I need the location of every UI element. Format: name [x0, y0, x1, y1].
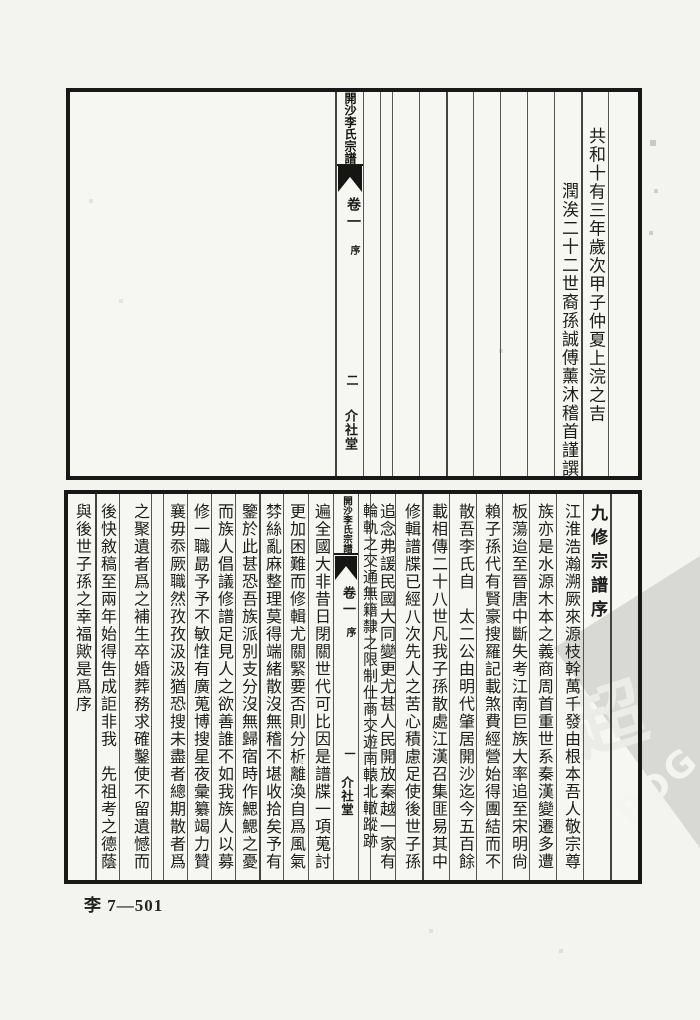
text-column: 散吾李氏自 太二公由明代肇居開沙迄今五百餘	[451, 503, 477, 871]
spine-title: 開沙李氏宗譜	[334, 495, 358, 555]
preface-title-column: 九修宗譜序	[584, 504, 610, 624]
scan-noise	[0, 0, 2, 2]
column-rule	[610, 494, 612, 880]
spine-page-number: 一	[341, 748, 357, 759]
text-column: 族亦是水源木本之義商周首重世系秦漢變遷多遭	[530, 503, 556, 871]
column-rule	[502, 494, 503, 880]
text-column: 遍全國大非昔日閉關世代可比因是譜牒一項蒐討	[307, 503, 333, 871]
column-rule	[363, 92, 364, 476]
spine-volume: 卷一	[342, 197, 362, 231]
column-rule	[95, 494, 97, 880]
spine-section: 序	[342, 627, 357, 637]
column-rule	[422, 494, 424, 880]
column-rule	[358, 494, 359, 880]
column-rule	[419, 92, 420, 476]
text-column: 修輯譜牒已經八次先人之苦心積慮足使後世子孫	[397, 503, 423, 871]
column-rule	[151, 494, 152, 880]
column-rule	[333, 494, 334, 880]
spine-section: 序	[346, 245, 361, 255]
column-rule	[235, 494, 236, 880]
text-column: 輪軌之交通無籍隸之限制仕商交遊南轅北轍蹤跡	[356, 503, 382, 850]
column-rule	[449, 494, 450, 880]
text-column: 鑒於此甚恐吾族派別支分沒無歸宿時作鰓鰓之憂	[234, 503, 260, 871]
column-rule	[283, 494, 284, 880]
column-rule	[163, 494, 164, 880]
column-rule	[119, 494, 120, 880]
column-rule	[556, 494, 557, 880]
spine-title: 開沙李氏宗譜	[337, 92, 363, 166]
spine-hall-name: 介社堂	[337, 776, 356, 817]
column-rule	[608, 92, 609, 476]
text-column: 板蕩迨至晉唐中斷失考江南巨族大率追至宋明尙	[504, 503, 530, 871]
catalogue-code: 李 7—501	[84, 891, 163, 916]
text-column: 賴子孫代有賢豪搜羅記載煞費經營始得團結而不	[477, 503, 503, 871]
spine-hall-name: 介社堂	[341, 409, 360, 451]
column-rule	[392, 92, 393, 476]
column-rule	[473, 92, 474, 476]
text-column: 之聚遺者爲之補生卒婚葬務求確鑿使不留遺憾而	[126, 503, 152, 871]
text-column: 襄毋忝厥職然孜孜汲汲猶恐搜未盡者總期散者爲	[162, 503, 188, 871]
column-rule	[446, 92, 448, 476]
text-column: 修一職勗予予不敏惟有廣蒐博搜星夜彙纂竭力贊	[186, 503, 212, 871]
column-rule	[500, 92, 501, 476]
text-column: 共和十有三年歲次甲子仲夏上浣之吉	[582, 127, 608, 423]
text-column: 更加困難而修輯尤關緊要否則分析離渙自爲風氣	[282, 503, 308, 871]
text-column: 載相傳二十八世凡我子孫散處江漢召集匪易其中	[424, 503, 450, 871]
column-rule	[527, 92, 528, 476]
text-column: 棼絲亂麻整理莫得端緒散沒無稽不堪收拾矣予有	[258, 503, 284, 871]
column-rule	[335, 92, 337, 476]
column-rule	[308, 494, 309, 880]
text-column: 潤涘二十二世裔孫誠傅薰沐稽首謹譔	[555, 182, 581, 478]
column-rule	[380, 92, 381, 476]
column-rule	[259, 494, 261, 880]
column-rule	[529, 494, 530, 880]
column-rule	[476, 494, 477, 880]
column-rule	[187, 494, 188, 880]
column-rule	[554, 92, 555, 476]
spine-page-number: 二	[344, 374, 361, 386]
text-column: 與後世子孫之幸福歟是爲序	[68, 503, 94, 713]
column-rule	[581, 92, 583, 476]
column-rule	[211, 494, 212, 880]
column-rule	[583, 494, 584, 880]
column-rule	[370, 494, 371, 880]
column-rule	[395, 494, 396, 880]
text-column: 而族人倡議修譜足見人之欲善誰不如我族人以募	[210, 503, 236, 871]
text-column: 江淮浩瀚溯厥來源枝幹萬千發由根本吾人敬宗尊	[557, 503, 583, 871]
